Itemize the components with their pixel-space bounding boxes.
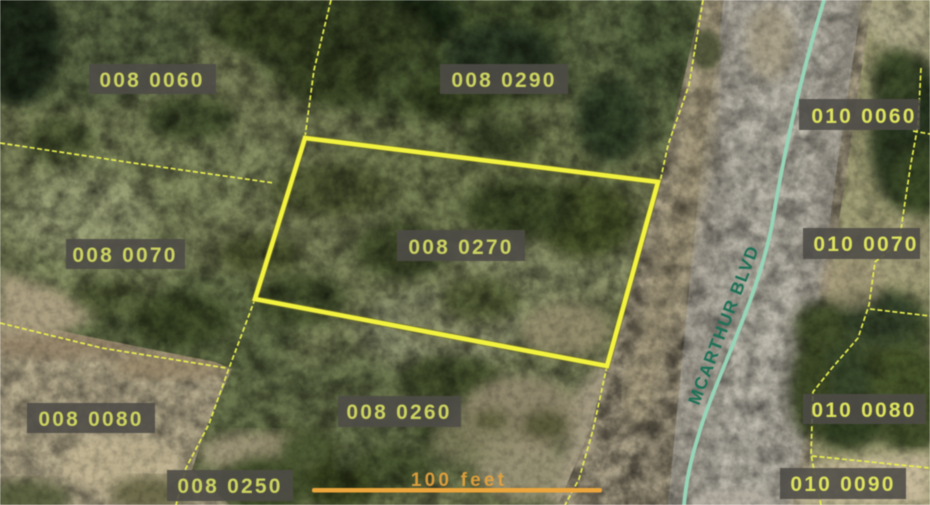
svg-text:010 0080: 010 0080 [811,399,916,422]
svg-text:008 0290: 008 0290 [451,69,556,92]
svg-text:008 0070: 008 0070 [72,244,177,267]
svg-text:008 0250: 008 0250 [177,475,282,498]
svg-text:008 0060: 008 0060 [99,69,204,92]
svg-text:010 0070: 010 0070 [813,233,918,256]
svg-text:008 0260: 008 0260 [346,401,451,424]
svg-text:008 0270: 008 0270 [408,236,513,259]
svg-text:008 0080: 008 0080 [38,408,143,431]
svg-text:010 0060: 010 0060 [811,105,916,128]
svg-text:010 0090: 010 0090 [790,473,895,496]
svg-text:100 feet: 100 feet [411,470,507,491]
